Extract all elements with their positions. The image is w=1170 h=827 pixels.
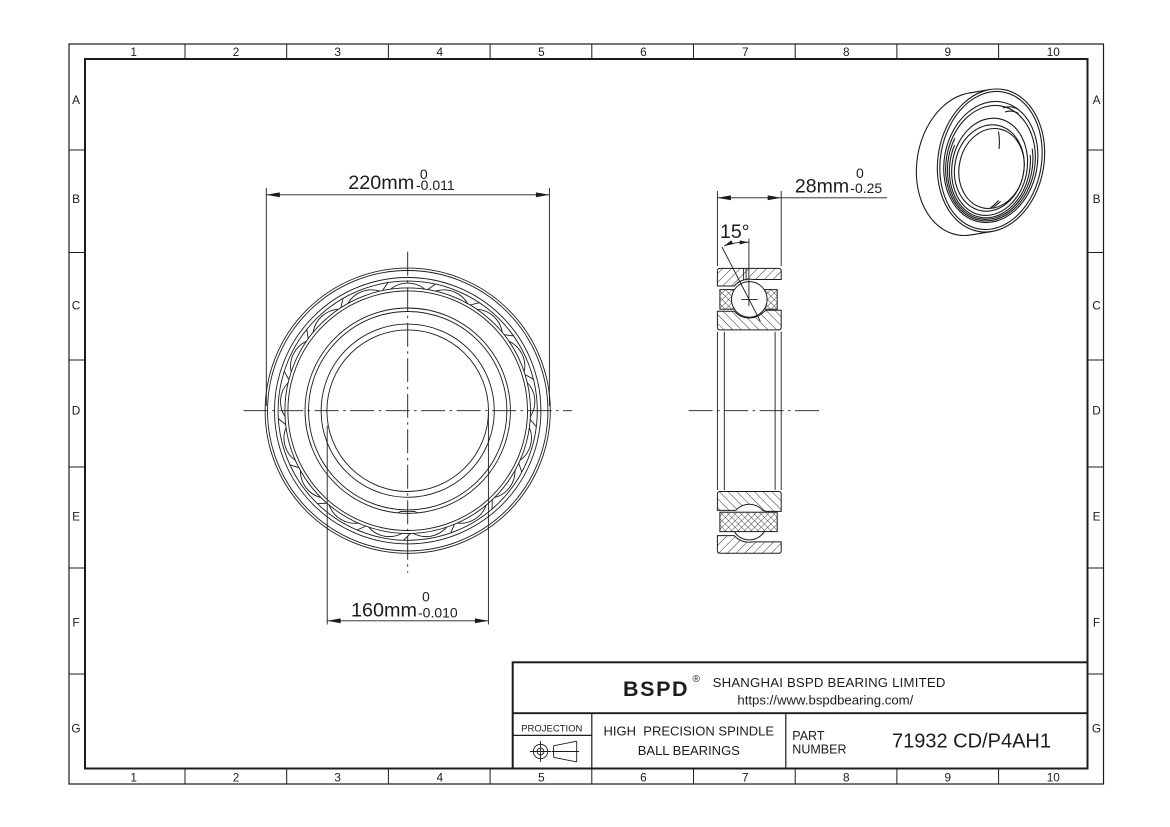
svg-text:8: 8 (843, 45, 850, 59)
svg-text:https://www.bspdbearing.com/: https://www.bspdbearing.com/ (737, 693, 913, 708)
svg-text:PART: PART (792, 729, 825, 743)
svg-text:PROJECTION: PROJECTION (521, 724, 582, 735)
svg-text:1: 1 (130, 771, 137, 785)
svg-text:5: 5 (538, 771, 545, 785)
svg-text:®: ® (693, 674, 701, 685)
svg-text:15°: 15° (720, 221, 750, 243)
svg-text:5: 5 (538, 45, 545, 59)
svg-text:BALL BEARINGS: BALL BEARINGS (638, 743, 740, 758)
svg-text:-0.010: -0.010 (418, 605, 458, 621)
svg-text:220mm: 220mm (348, 172, 414, 194)
svg-text:160mm: 160mm (351, 600, 417, 622)
svg-text:A: A (1093, 93, 1101, 107)
svg-text:71932 CD/P4AH1: 71932 CD/P4AH1 (892, 731, 1051, 753)
svg-text:D: D (72, 403, 81, 417)
svg-text:SHANGHAI BSPD BEARING LIMITED: SHANGHAI BSPD BEARING LIMITED (713, 675, 946, 690)
svg-text:C: C (1092, 299, 1101, 313)
svg-text:0: 0 (856, 165, 864, 181)
svg-text:G: G (1092, 722, 1101, 736)
svg-text:2: 2 (233, 45, 240, 59)
svg-text:7: 7 (742, 45, 749, 59)
svg-text:-0.25: -0.25 (850, 180, 882, 196)
svg-text:A: A (72, 93, 80, 107)
svg-text:3: 3 (334, 45, 341, 59)
svg-text:C: C (72, 299, 81, 313)
svg-text:1: 1 (130, 45, 137, 59)
svg-text:0: 0 (420, 166, 428, 182)
svg-text:2: 2 (233, 771, 240, 785)
svg-text:4: 4 (437, 771, 444, 785)
svg-text:B: B (1093, 192, 1101, 206)
svg-text:7: 7 (742, 771, 749, 785)
svg-text:NUMBER: NUMBER (792, 743, 846, 757)
svg-text:F: F (1093, 615, 1100, 629)
svg-text:9: 9 (945, 45, 952, 59)
svg-text:10: 10 (1047, 771, 1061, 785)
svg-text:HIGH PRECISION SPINDLE: HIGH PRECISION SPINDLE (604, 724, 775, 739)
svg-text:6: 6 (640, 45, 647, 59)
svg-text:28mm: 28mm (795, 176, 849, 198)
svg-text:E: E (72, 509, 80, 523)
svg-text:8: 8 (843, 771, 850, 785)
svg-text:B: B (72, 192, 80, 206)
svg-text:4: 4 (437, 45, 444, 59)
svg-text:BSPD: BSPD (623, 677, 689, 701)
svg-text:10: 10 (1047, 45, 1061, 59)
svg-text:9: 9 (945, 771, 952, 785)
svg-text:D: D (1092, 403, 1101, 417)
svg-text:6: 6 (640, 771, 647, 785)
svg-text:G: G (71, 722, 80, 736)
svg-text:E: E (1093, 509, 1101, 523)
svg-text:F: F (72, 615, 79, 629)
svg-text:3: 3 (334, 771, 341, 785)
svg-text:0: 0 (422, 589, 430, 605)
